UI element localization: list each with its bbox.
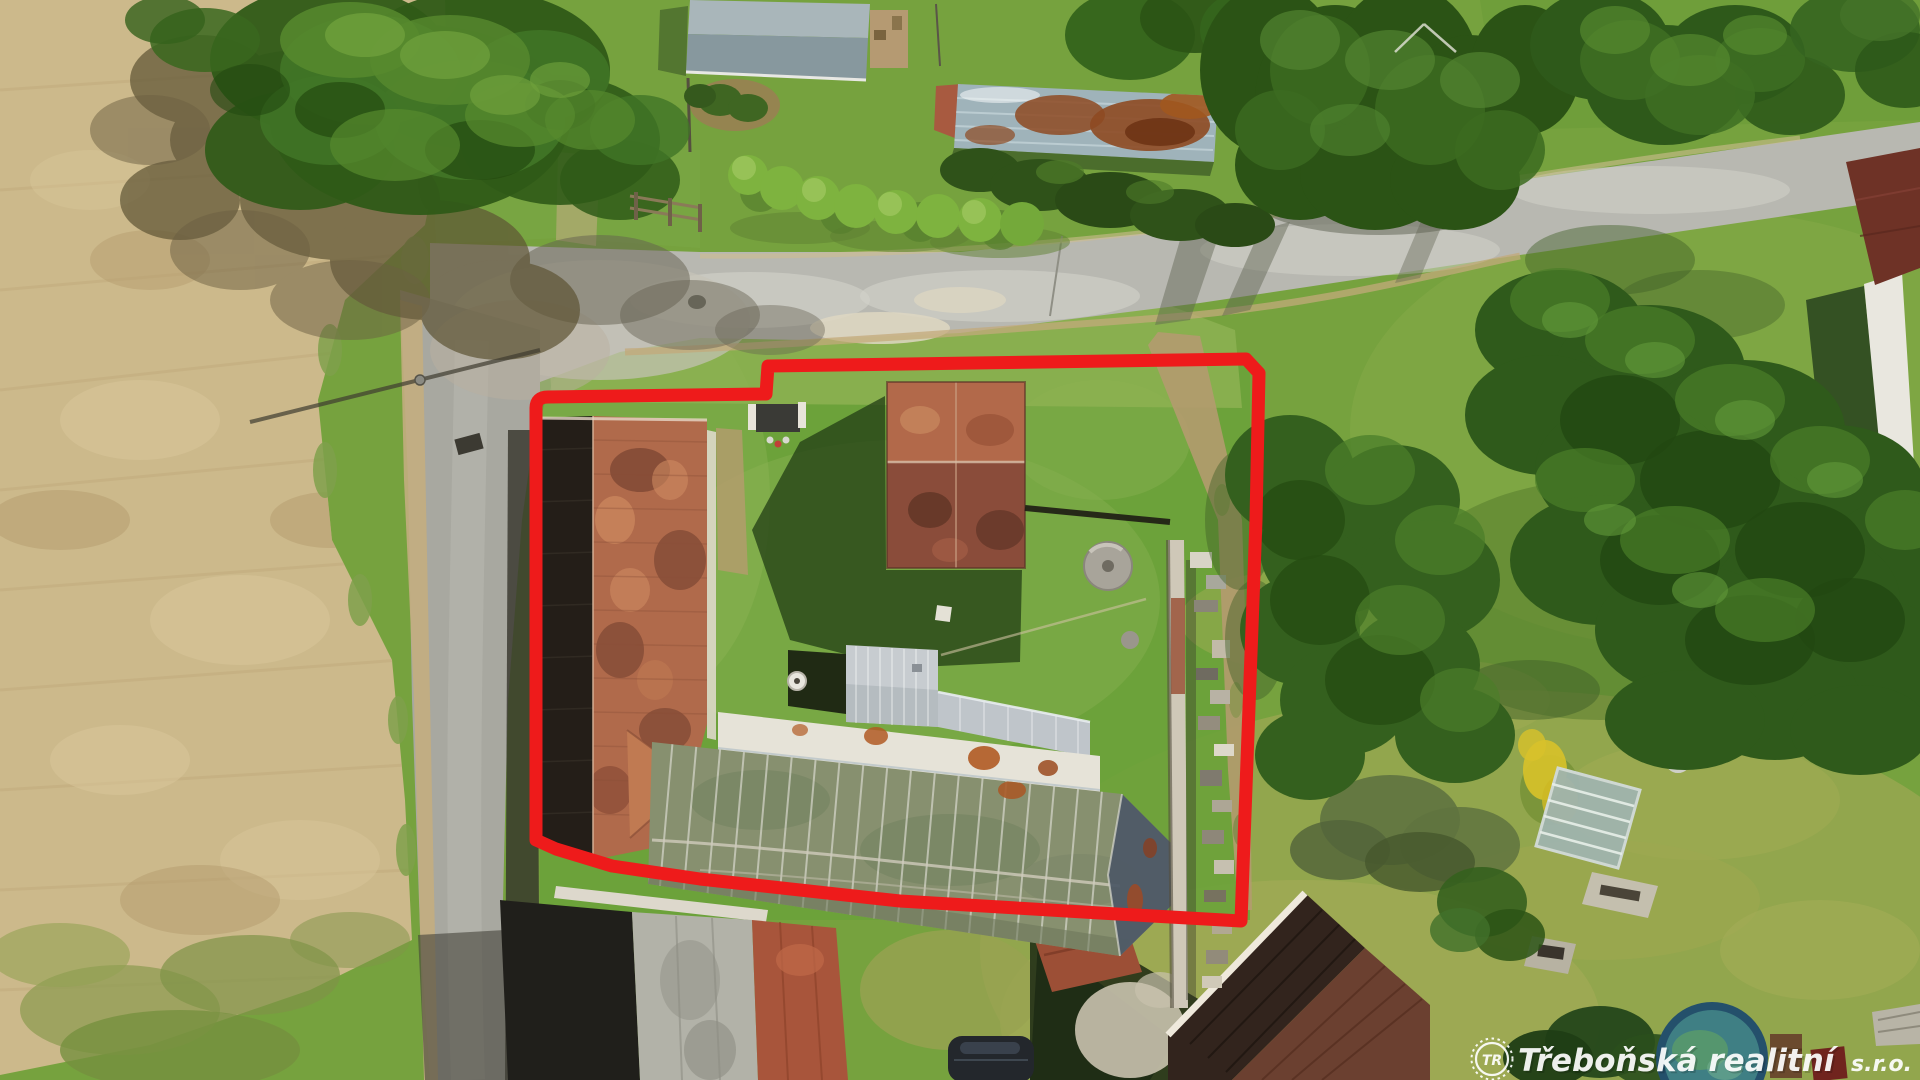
watermark-company: Třeboňská realitní bbox=[1518, 1043, 1839, 1079]
car bbox=[948, 1036, 1034, 1080]
white-slab bbox=[935, 605, 952, 622]
watermark-logo-text: TR bbox=[1482, 1053, 1502, 1069]
aerial-photo: TR Třeboňská realitní Třeboňská realitní… bbox=[0, 0, 1920, 1080]
watermark-suffix: s.r.o. bbox=[1851, 1052, 1912, 1077]
